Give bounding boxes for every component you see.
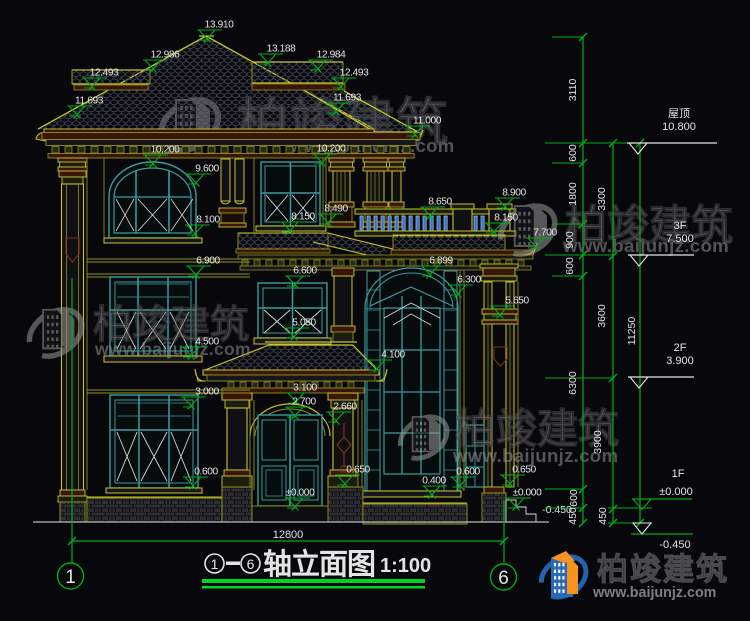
svg-text:8.650: 8.650 bbox=[428, 197, 452, 208]
svg-text:1: 1 bbox=[65, 567, 76, 588]
svg-text:柏竣建筑: 柏竣建筑 bbox=[597, 552, 729, 587]
svg-text:3900: 3900 bbox=[592, 430, 604, 454]
svg-text:10.800: 10.800 bbox=[662, 121, 696, 133]
svg-text:3300: 3300 bbox=[596, 187, 608, 211]
svg-text:5.050: 5.050 bbox=[292, 318, 316, 329]
svg-text:11250: 11250 bbox=[626, 317, 638, 346]
svg-text:600: 600 bbox=[567, 144, 579, 162]
svg-text:900: 900 bbox=[564, 231, 576, 249]
svg-text:0.600: 0.600 bbox=[456, 467, 480, 478]
svg-text:3600: 3600 bbox=[596, 304, 608, 328]
svg-text:13.910: 13.910 bbox=[205, 20, 234, 31]
svg-text:10.200: 10.200 bbox=[151, 145, 180, 156]
svg-text:600: 600 bbox=[568, 489, 580, 507]
svg-text:www.baijunjz.com: www.baijunjz.com bbox=[592, 585, 716, 601]
svg-text:±0.000: ±0.000 bbox=[286, 488, 315, 499]
svg-text:6.900: 6.900 bbox=[196, 256, 220, 267]
svg-text:6.899: 6.899 bbox=[429, 256, 453, 267]
svg-text:1:100: 1:100 bbox=[380, 555, 431, 577]
svg-text:11.000: 11.000 bbox=[413, 116, 442, 127]
svg-text:12800: 12800 bbox=[273, 529, 304, 541]
svg-text:4.500: 4.500 bbox=[195, 337, 219, 348]
svg-text:轴立面图: 轴立面图 bbox=[263, 547, 375, 581]
svg-text:2.660: 2.660 bbox=[333, 402, 357, 413]
svg-text:7.700: 7.700 bbox=[533, 228, 557, 239]
svg-text:6300: 6300 bbox=[567, 371, 579, 395]
svg-text:0.650: 0.650 bbox=[512, 465, 536, 476]
svg-text:13.188: 13.188 bbox=[267, 44, 296, 55]
svg-text:4.100: 4.100 bbox=[381, 350, 405, 361]
svg-text:-0.450: -0.450 bbox=[659, 539, 690, 551]
svg-text:1800: 1800 bbox=[567, 182, 579, 206]
svg-text:0.400: 0.400 bbox=[422, 476, 446, 487]
svg-text:8.490: 8.490 bbox=[324, 204, 348, 215]
svg-text:±0.000: ±0.000 bbox=[659, 486, 693, 498]
svg-text:8.150: 8.150 bbox=[291, 212, 315, 223]
svg-text:0.600: 0.600 bbox=[194, 467, 218, 478]
svg-text:6.600: 6.600 bbox=[293, 266, 317, 277]
svg-text:8.150: 8.150 bbox=[494, 213, 518, 224]
svg-text:450: 450 bbox=[567, 507, 579, 525]
svg-text:6.300: 6.300 bbox=[457, 275, 481, 286]
svg-text:12.493: 12.493 bbox=[90, 68, 119, 79]
svg-text:3F: 3F bbox=[674, 220, 687, 232]
svg-text:0.650: 0.650 bbox=[346, 465, 370, 476]
svg-text:9.600: 9.600 bbox=[195, 164, 219, 175]
svg-text:600: 600 bbox=[564, 257, 576, 275]
svg-text:8.100: 8.100 bbox=[196, 215, 220, 226]
svg-text:1: 1 bbox=[211, 556, 219, 572]
svg-text:8.900: 8.900 bbox=[502, 188, 526, 199]
svg-text:7.500: 7.500 bbox=[666, 233, 694, 245]
svg-text:2.700: 2.700 bbox=[292, 397, 316, 408]
svg-text:10.200: 10.200 bbox=[317, 144, 346, 155]
svg-text:12.984: 12.984 bbox=[317, 50, 346, 61]
svg-text:2F: 2F bbox=[674, 342, 687, 354]
svg-text:www.baijunjz.com: www.baijunjz.com bbox=[94, 339, 251, 359]
svg-text:5.650: 5.650 bbox=[505, 296, 529, 307]
svg-text:1F: 1F bbox=[672, 468, 685, 480]
svg-text:11.693: 11.693 bbox=[333, 93, 362, 104]
svg-text:3.900: 3.900 bbox=[666, 355, 694, 367]
svg-text:12.493: 12.493 bbox=[340, 68, 369, 79]
svg-text:3110: 3110 bbox=[567, 79, 579, 102]
svg-text:12.986: 12.986 bbox=[151, 50, 180, 61]
svg-text:11.693: 11.693 bbox=[75, 96, 104, 107]
svg-text:±0.000: ±0.000 bbox=[513, 488, 542, 499]
svg-text:6: 6 bbox=[247, 556, 255, 572]
svg-text:6: 6 bbox=[498, 568, 509, 589]
svg-text:3.100: 3.100 bbox=[293, 383, 317, 394]
svg-text:450: 450 bbox=[597, 507, 609, 525]
svg-text:3.000: 3.000 bbox=[195, 387, 219, 398]
svg-text:屋顶: 屋顶 bbox=[668, 107, 690, 120]
svg-text:www.baijunjz.com: www.baijunjz.com bbox=[562, 235, 729, 256]
